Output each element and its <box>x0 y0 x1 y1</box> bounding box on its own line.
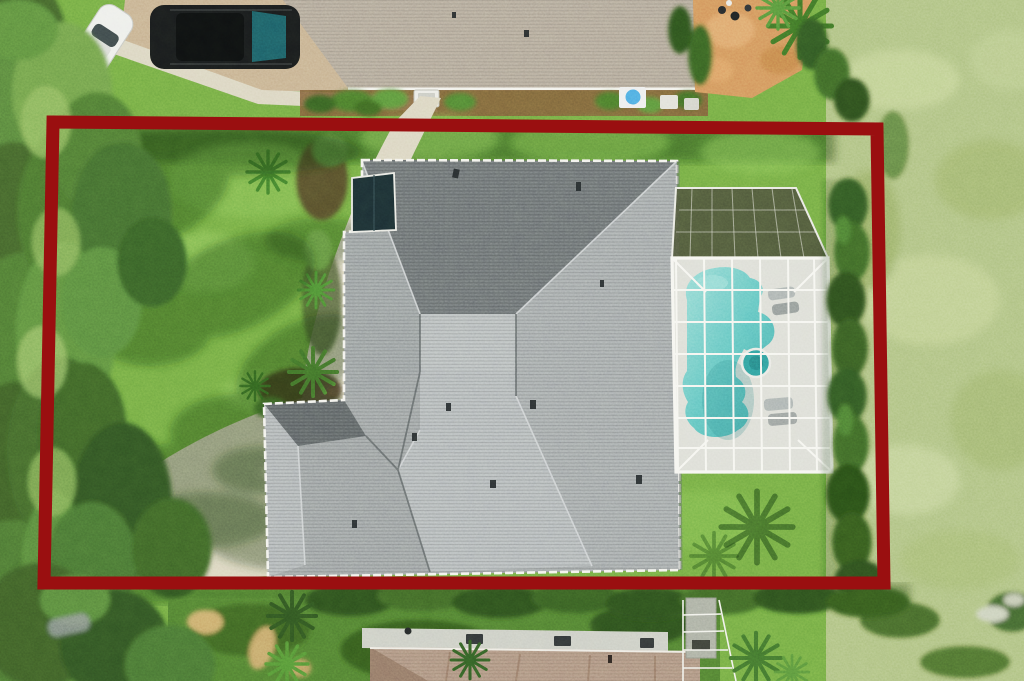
aerial-photo-stage <box>0 0 1024 681</box>
aerial-photo <box>0 0 1024 681</box>
